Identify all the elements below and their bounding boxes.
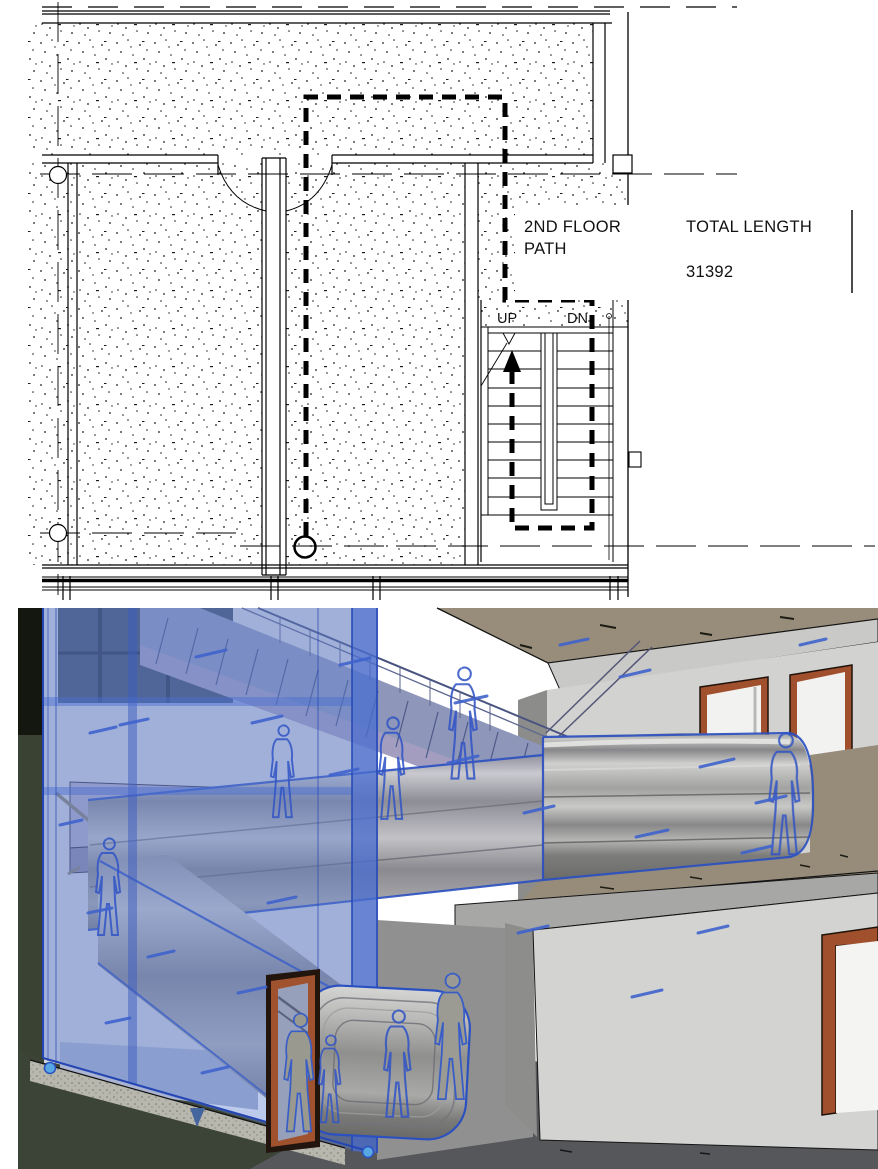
- floor-plan-view[interactable]: UP DN 2ND FLOOR PATH TOTAL LENGTH 31392: [0, 0, 878, 605]
- selection-grip-left[interactable]: [45, 1063, 56, 1074]
- callout-title-line1: 2ND FLOOR: [524, 218, 621, 236]
- callout-total-label: TOTAL LENGTH: [686, 218, 812, 236]
- exterior-dark-top: [18, 608, 44, 743]
- balcony-floor-right: [810, 745, 878, 853]
- grid-bubble-top: [50, 167, 67, 184]
- lower-door-right[interactable]: [822, 927, 878, 1115]
- stair-down-label: DN: [567, 311, 588, 327]
- revit-canvas: UP DN 2ND FLOOR PATH TOTAL LENGTH 31392: [0, 0, 878, 1169]
- stair-well-floor: [483, 327, 626, 562]
- exterior-olive-left: [18, 735, 44, 1070]
- grid-bubble-bottom: [50, 525, 67, 542]
- lower-wall-side: [505, 923, 537, 1137]
- sweep-balcony-run[interactable]: [543, 733, 813, 880]
- view-3d[interactable]: [0, 605, 878, 1169]
- path-callout[interactable]: 2ND FLOOR PATH TOTAL LENGTH 31392: [515, 205, 858, 300]
- stair-up-label: UP: [497, 311, 517, 327]
- callout-total-value: 31392: [686, 263, 733, 281]
- callout-title-line2: PATH: [524, 240, 567, 258]
- selection-grip-right[interactable]: [363, 1147, 374, 1158]
